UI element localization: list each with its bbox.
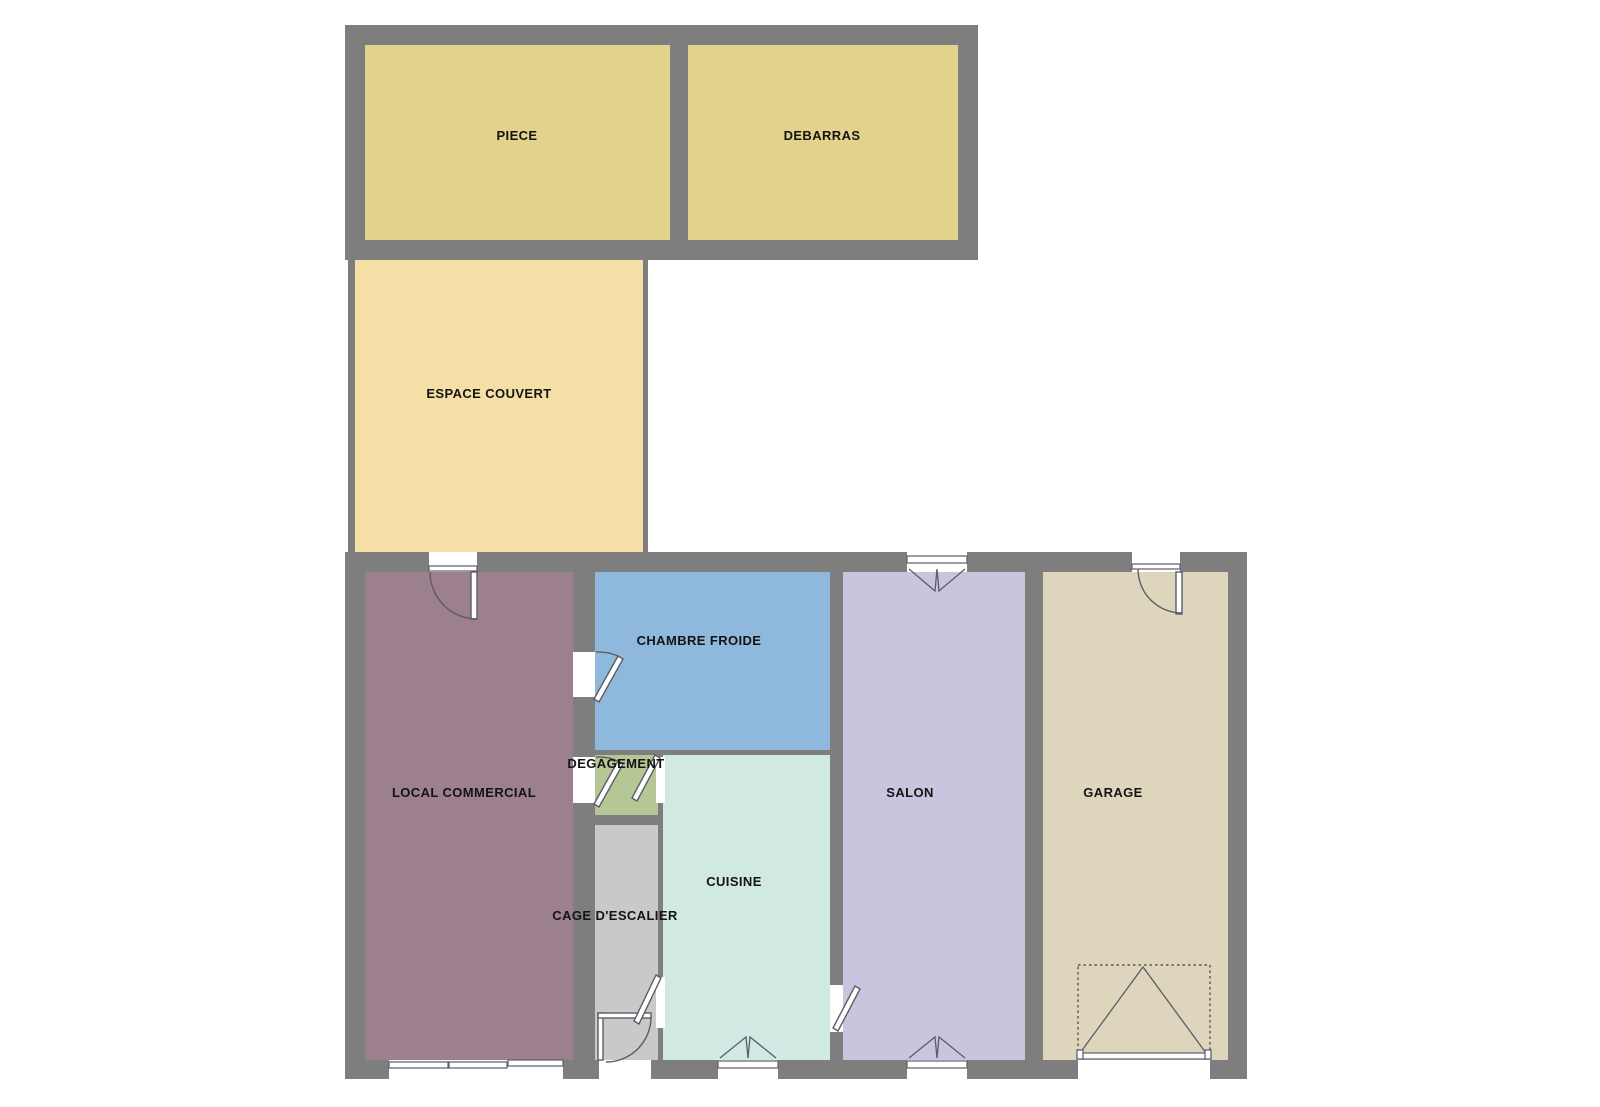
window-frame-icon xyxy=(907,1061,967,1068)
room-label-cuisine: CUISINE xyxy=(706,874,762,889)
room-cage-escalier xyxy=(595,825,658,1060)
door-threshold xyxy=(429,566,477,571)
window-local-commercial xyxy=(389,1060,563,1079)
window-frame-icon xyxy=(907,556,967,563)
floor-plan: PIECE DEBARRAS ESPACE COUVERT xyxy=(0,0,1600,1107)
room-chambre-froide xyxy=(595,572,830,750)
room-label-local-commercial: LOCAL COMMERCIAL xyxy=(392,785,536,800)
door-threshold xyxy=(1132,564,1180,569)
top-building: PIECE DEBARRAS xyxy=(345,25,978,260)
garage-door-opening xyxy=(1078,1060,1210,1079)
window-frame-icon xyxy=(718,1061,778,1068)
door-opening xyxy=(573,652,595,697)
espace-couvert-area: ESPACE COUVERT xyxy=(348,260,648,552)
room-label-garage: GARAGE xyxy=(1083,785,1142,800)
door-leaf-icon xyxy=(471,572,477,619)
espace-couvert-wall-left xyxy=(348,260,355,552)
window-pane-icon xyxy=(389,1062,448,1068)
door-opening xyxy=(599,1060,651,1079)
garage-door-end-icon xyxy=(1205,1050,1211,1059)
room-salon xyxy=(843,572,1025,1060)
room-garage xyxy=(1043,572,1228,1060)
window-pane-icon xyxy=(449,1062,507,1068)
room-label-degagement: DEGAGEMENT xyxy=(567,756,664,771)
room-label-piece: PIECE xyxy=(496,128,537,143)
bottom-building: LOCAL COMMERCIAL CHAMBRE FROIDE DEGAGEME… xyxy=(345,552,1247,1079)
room-label-espace-couvert: ESPACE COUVERT xyxy=(426,386,551,401)
room-label-cage-escalier: CAGE D'ESCALIER xyxy=(552,908,678,923)
espace-couvert-wall-right xyxy=(643,260,648,552)
floor-plan-page: PIECE DEBARRAS ESPACE COUVERT xyxy=(0,0,1600,1107)
room-local-commercial xyxy=(365,572,573,1060)
window-pane-icon xyxy=(508,1060,563,1066)
room-espace-couvert xyxy=(355,260,643,552)
room-label-debarras: DEBARRAS xyxy=(784,128,861,143)
garage-door-bar-icon xyxy=(1077,1053,1211,1059)
door-leaf-icon xyxy=(598,1013,603,1060)
room-label-salon: SALON xyxy=(886,785,934,800)
door-leaf-icon xyxy=(1176,572,1182,614)
garage-door-end-icon xyxy=(1077,1050,1083,1059)
room-cuisine xyxy=(663,755,830,1060)
room-label-chambre-froide: CHAMBRE FROIDE xyxy=(637,633,762,648)
